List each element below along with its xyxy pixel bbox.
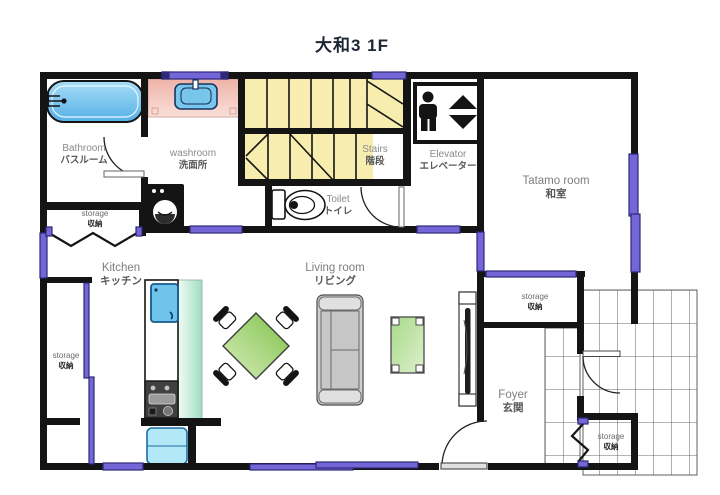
room-label-toilet: Toiletトイレ [324, 194, 353, 218]
storage-left-slider [84, 283, 89, 378]
foyer-storage-slider [486, 271, 576, 277]
room-label-kitchen: Kitchenキッチン [100, 261, 142, 288]
kitchen-counter [145, 280, 202, 420]
toilet-door [361, 187, 404, 227]
tv-screen [465, 308, 471, 394]
room-label-foyer: Foyer玄関 [498, 388, 527, 415]
room-label-storage-bottom-right: storage収納 [598, 432, 625, 451]
room-label-bathroom: Bathroomバスルーム [60, 143, 107, 167]
kitchen-sink [151, 284, 178, 322]
room-label-tatami: Tatamo room和室 [522, 174, 589, 201]
room-label-storage-left: storage収納 [53, 351, 80, 370]
toilet-icon [272, 190, 325, 220]
room-label-storage-upper-left: storage収納 [82, 209, 109, 228]
washing-machine-icon [146, 184, 184, 228]
tatami-window [629, 154, 638, 216]
washroom-sink [175, 80, 217, 109]
kitchen-partition-wall-2 [188, 426, 196, 464]
kitchen-partition-wall [141, 418, 221, 426]
elevator-icon [415, 84, 481, 142]
storage-upper-left-door [49, 233, 137, 246]
room-label-storage-foyer: storage収納 [522, 292, 549, 311]
tatami-sliding-door [477, 232, 484, 271]
floorplan-drawing [0, 0, 720, 495]
refrigerator [147, 428, 187, 464]
room-label-elevator: Elevatorエレベーター [419, 149, 476, 173]
floorplan-page: 大和3 1F [0, 0, 720, 495]
sofa [317, 295, 363, 405]
room-label-living: Living roomリビング [305, 261, 364, 288]
room-label-stairs: Stairs階段 [362, 144, 388, 168]
bathroom-door [104, 137, 144, 177]
room-label-washroom: washroom洗面所 [170, 148, 216, 172]
side-table [391, 317, 424, 373]
tv-stand [459, 292, 476, 406]
stove [145, 381, 178, 418]
vanity-counter [148, 79, 240, 117]
front-door [439, 421, 488, 471]
bathtub [40, 81, 143, 122]
